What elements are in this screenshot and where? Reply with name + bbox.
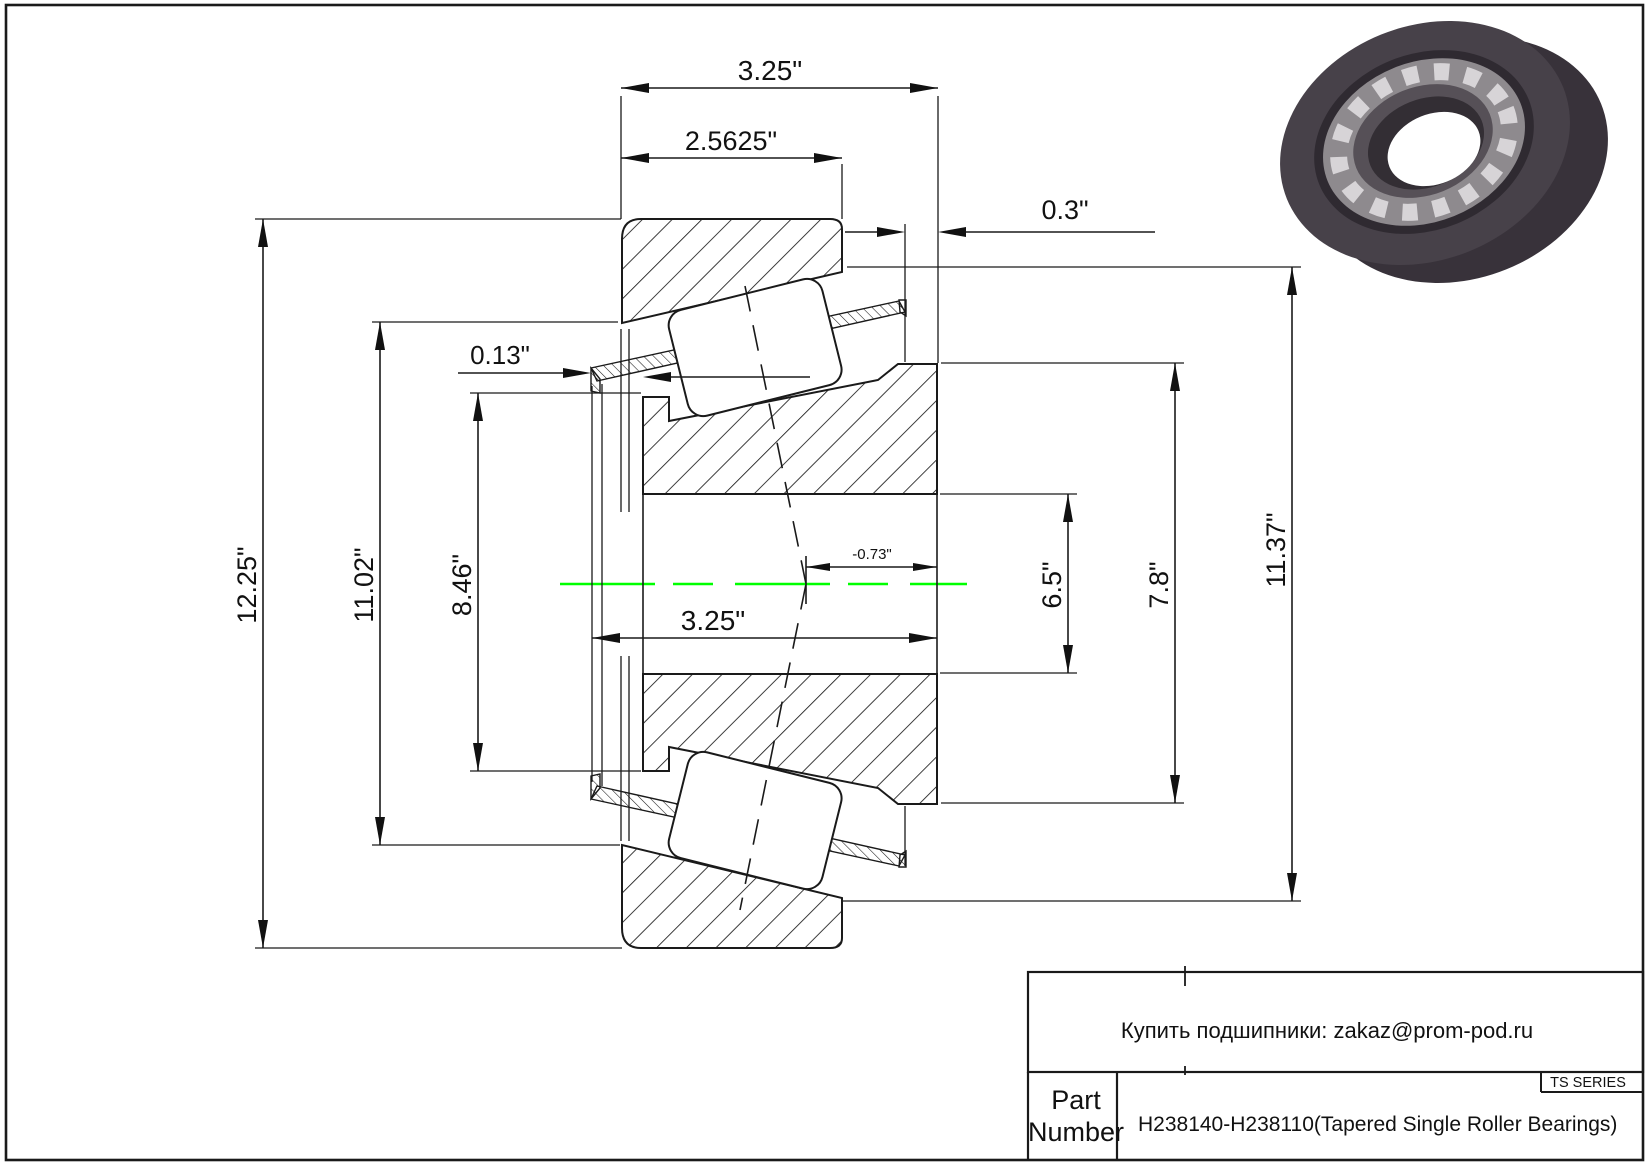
dim-overall-top: 3.25" xyxy=(621,55,938,93)
dim-cup-width-label: 2.5625" xyxy=(685,126,777,156)
dim-rib-dia-label: 7.8" xyxy=(1144,561,1174,608)
dim-8-46-label: 8.46" xyxy=(447,554,477,616)
dim-eff-center: -0.73" xyxy=(806,546,937,604)
dim-inner-width-label: 3.25" xyxy=(681,605,745,636)
dim-race-dia: 11.37" xyxy=(1261,267,1297,901)
dim-cup-width: 2.5625" xyxy=(621,126,842,163)
dim-rib-dia: 7.8" xyxy=(1144,363,1180,803)
dim-11-02-label: 11.02" xyxy=(349,547,379,622)
dim-outer-dia-label: 12.25" xyxy=(232,546,262,623)
contact-line: Купить подшипники: zakaz@prom-pod.ru xyxy=(1121,1018,1533,1043)
drawing-sheet: 3.25" 2.5625" 0.3" 0.13" xyxy=(0,0,1649,1167)
dim-outer-dia: 12.25" xyxy=(232,219,268,948)
dim-bore-dia-label: 6.5" xyxy=(1037,561,1067,608)
dim-standout-label: 0.3" xyxy=(1041,195,1088,225)
dim-cage-lip-label: 0.13" xyxy=(470,340,530,370)
dim-standout: 0.3" xyxy=(845,195,1155,237)
dim-eff-center-label: -0.73" xyxy=(852,546,892,563)
bearing-3d-render xyxy=(1243,0,1645,326)
dim-8-46: 8.46" xyxy=(447,393,483,771)
dim-overall-top-label: 3.25" xyxy=(738,55,802,86)
dim-11-02: 11.02" xyxy=(349,322,385,845)
part-label-line2: Number xyxy=(1028,1117,1124,1147)
series-label: TS SERIES xyxy=(1550,1075,1626,1091)
bearing-drawing-canvas: 3.25" 2.5625" 0.3" 0.13" xyxy=(0,0,1649,1167)
part-number-value: H238140-H238110(Tapered Single Roller Be… xyxy=(1138,1113,1617,1136)
dim-race-dia-label: 11.37" xyxy=(1261,512,1291,587)
dim-bore-dia: 6.5" xyxy=(1037,494,1073,673)
part-label-line1: Part xyxy=(1051,1085,1101,1115)
